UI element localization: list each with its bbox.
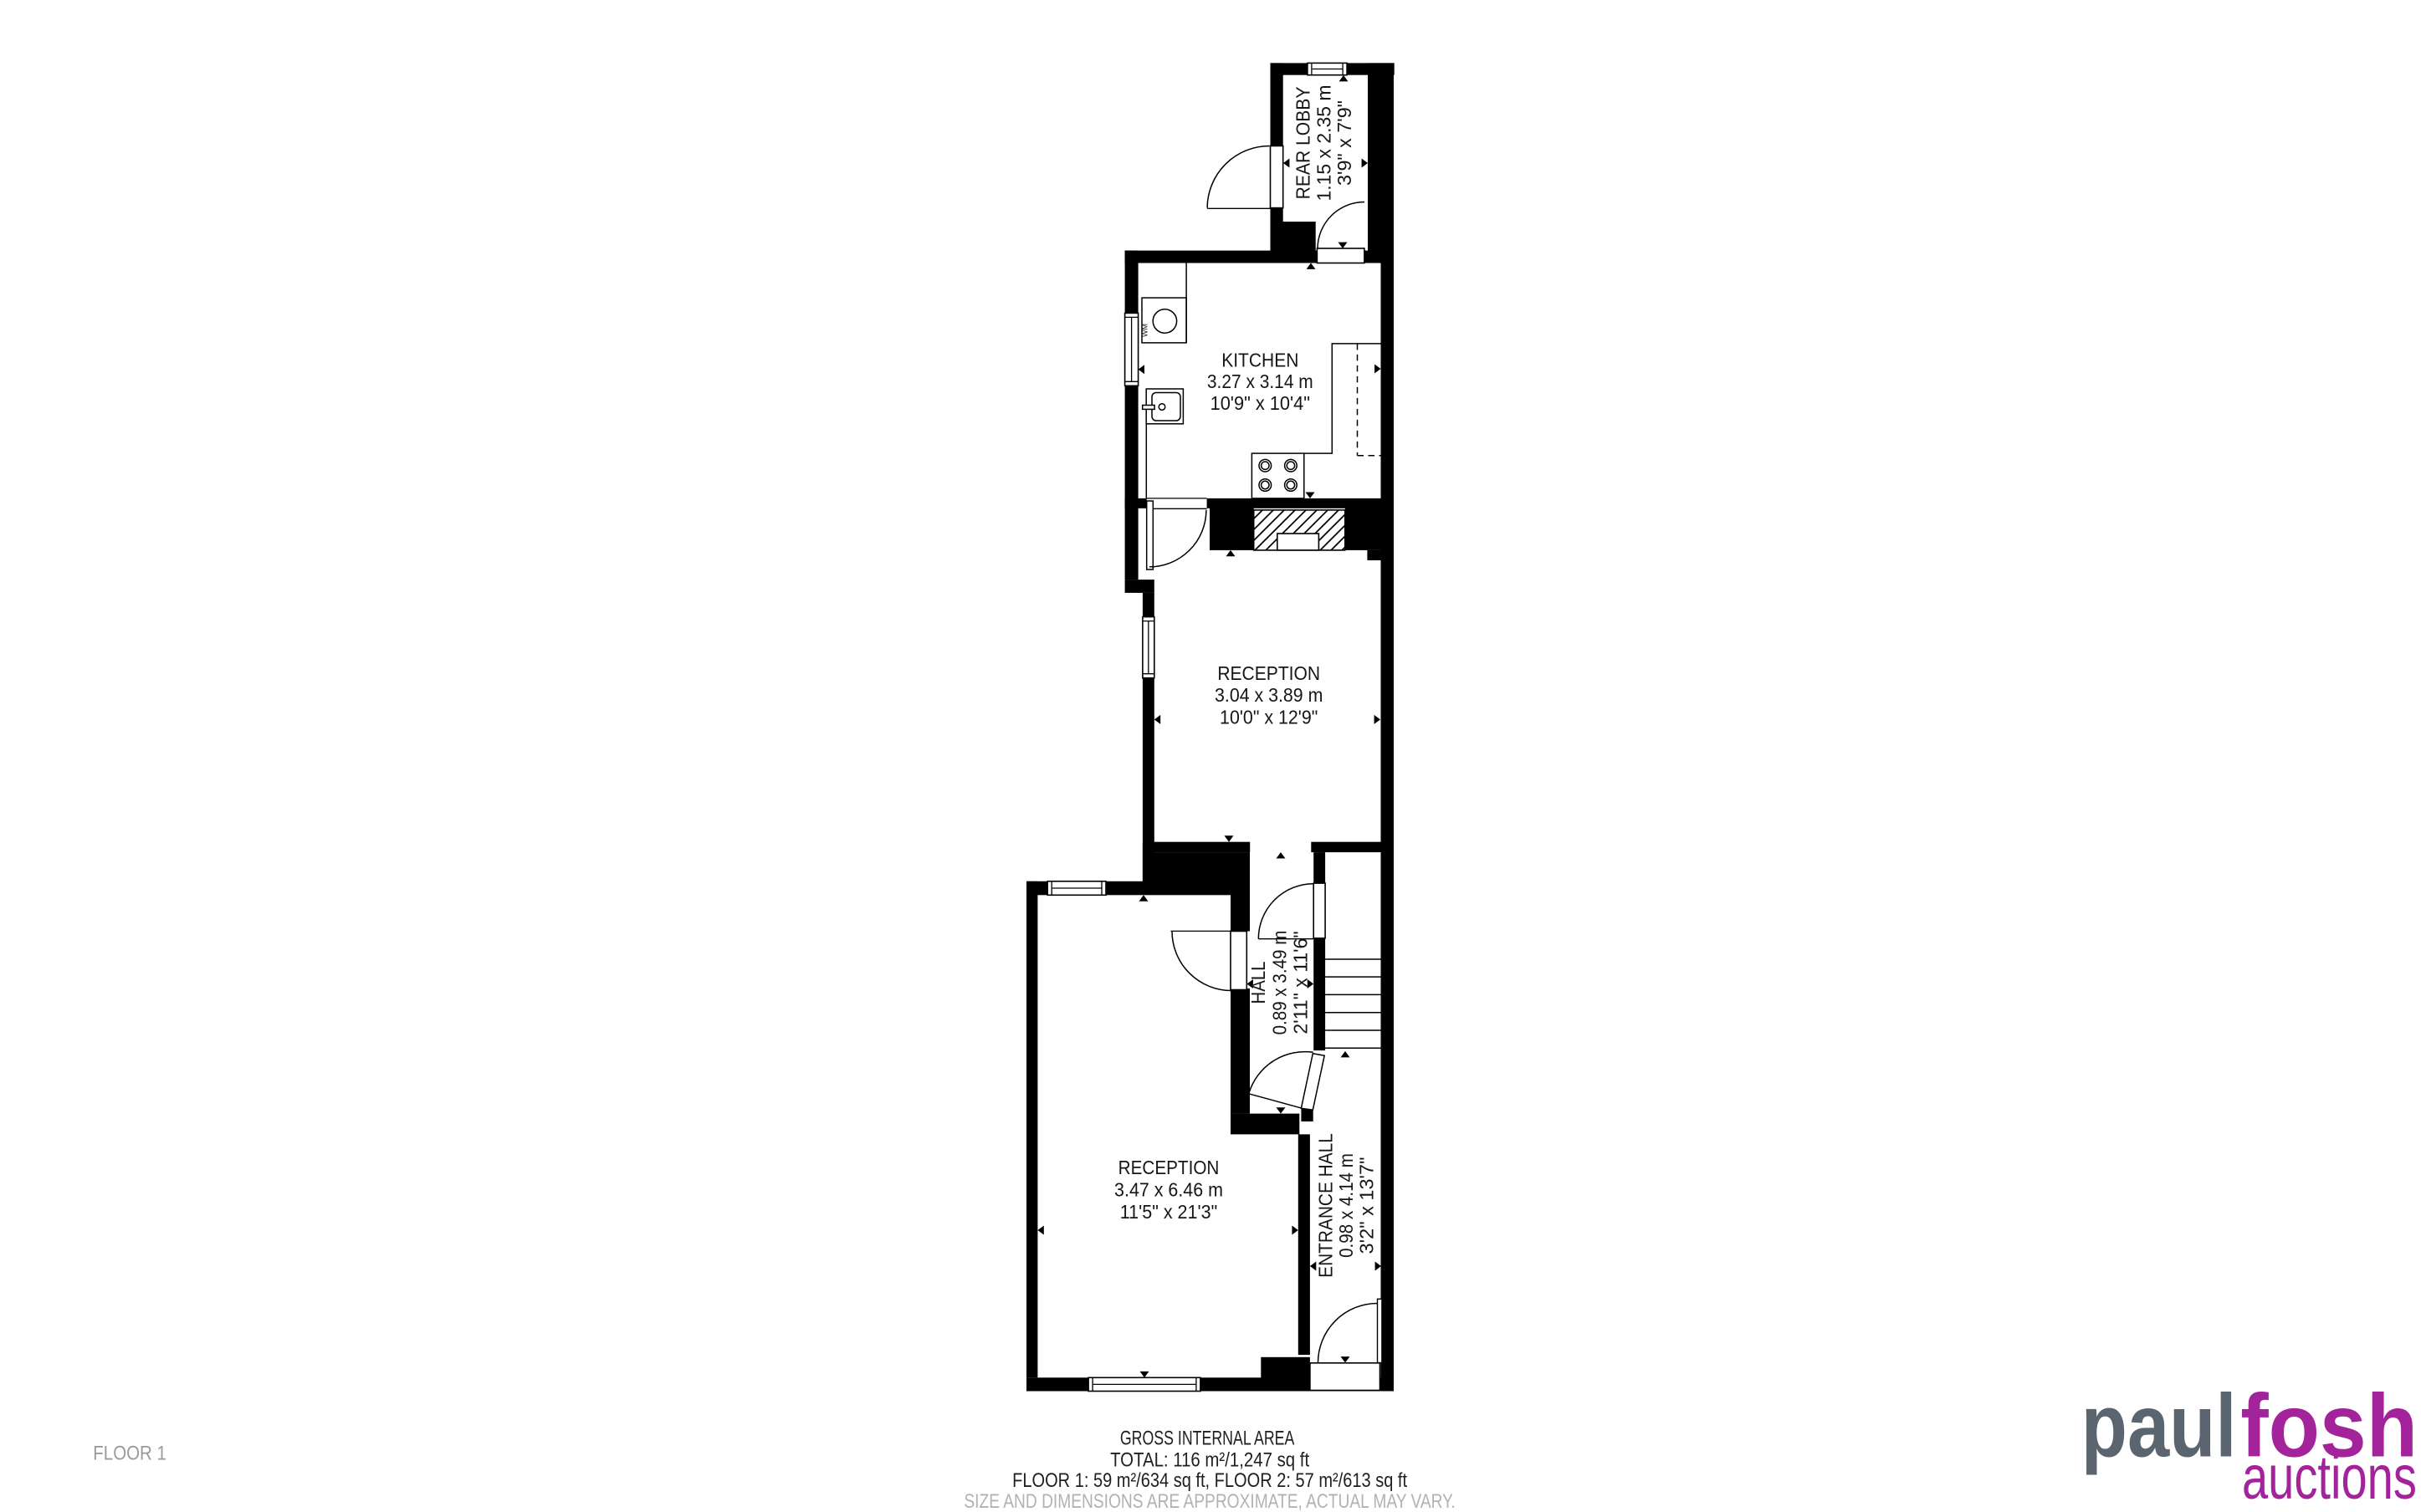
svg-text:10'9" x 10'4": 10'9" x 10'4" — [1210, 392, 1310, 414]
svg-text:REAR LOBBY: REAR LOBBY — [1292, 86, 1314, 199]
svg-text:GROSS INTERNAL AREA: GROSS INTERNAL AREA — [1120, 1428, 1295, 1449]
svg-text:2'11" x 11'6": 2'11" x 11'6" — [1290, 931, 1312, 1034]
svg-text:10'0" x 12'9": 10'0" x 12'9" — [1220, 706, 1318, 728]
svg-text:ENTRANCE HALL: ENTRANCE HALL — [1315, 1133, 1337, 1278]
svg-text:KITCHEN: KITCHEN — [1221, 349, 1298, 370]
svg-text:3'2" x 13'7": 3'2" x 13'7" — [1356, 1157, 1378, 1254]
svg-text:HALL: HALL — [1247, 962, 1270, 1004]
svg-text:RECEPTION: RECEPTION — [1217, 662, 1320, 684]
svg-text:3.27 x 3.14 m: 3.27 x 3.14 m — [1207, 370, 1313, 392]
svg-text:3.47 x 6.46 m: 3.47 x 6.46 m — [1114, 1179, 1223, 1201]
svg-text:RECEPTION: RECEPTION — [1118, 1157, 1220, 1178]
svg-text:11'5" x 21'3": 11'5" x 21'3" — [1120, 1201, 1217, 1223]
svg-text:paul: paul — [2081, 1375, 2237, 1475]
svg-text:FLOOR 1: 59 m²/634 sq ft, FLOO: FLOOR 1: 59 m²/634 sq ft, FLOOR 2: 57 m²… — [1012, 1469, 1407, 1491]
svg-text:1.15 x 2.35 m: 1.15 x 2.35 m — [1313, 85, 1334, 202]
svg-text:0.98 x 4.14 m: 0.98 x 4.14 m — [1335, 1153, 1357, 1258]
svg-text:WM: WM — [1141, 324, 1149, 337]
svg-text:FLOOR 1: FLOOR 1 — [93, 1442, 166, 1464]
svg-text:TOTAL: 116 m²/1,247 sq ft: TOTAL: 116 m²/1,247 sq ft — [1110, 1448, 1310, 1471]
svg-text:3.04 x 3.89 m: 3.04 x 3.89 m — [1215, 684, 1323, 706]
svg-text:0.89 x 3.49 m: 0.89 x 3.49 m — [1268, 931, 1290, 1035]
svg-text:SIZE AND DIMENSIONS ARE APPROX: SIZE AND DIMENSIONS ARE APPROXIMATE, ACT… — [964, 1489, 1455, 1512]
svg-text:auctions: auctions — [2242, 1443, 2417, 1511]
svg-text:3'9" x 7'9": 3'9" x 7'9" — [1333, 100, 1355, 186]
